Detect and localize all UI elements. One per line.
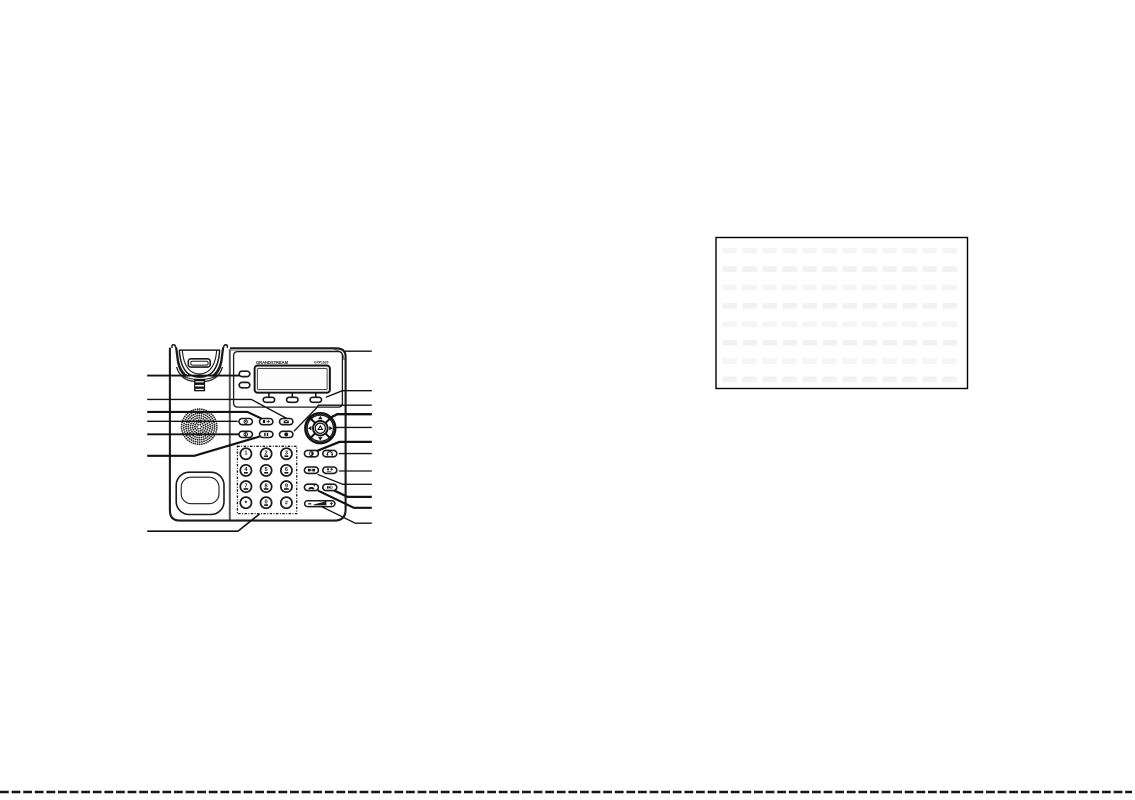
svg-text:GXP1620: GXP1620 — [314, 361, 329, 365]
svg-text:#: # — [285, 501, 288, 507]
svg-text:1: 1 — [244, 451, 247, 457]
svg-text:*: * — [245, 500, 248, 507]
svg-text:GRANDSTREAM: GRANDSTREAM — [256, 360, 288, 365]
